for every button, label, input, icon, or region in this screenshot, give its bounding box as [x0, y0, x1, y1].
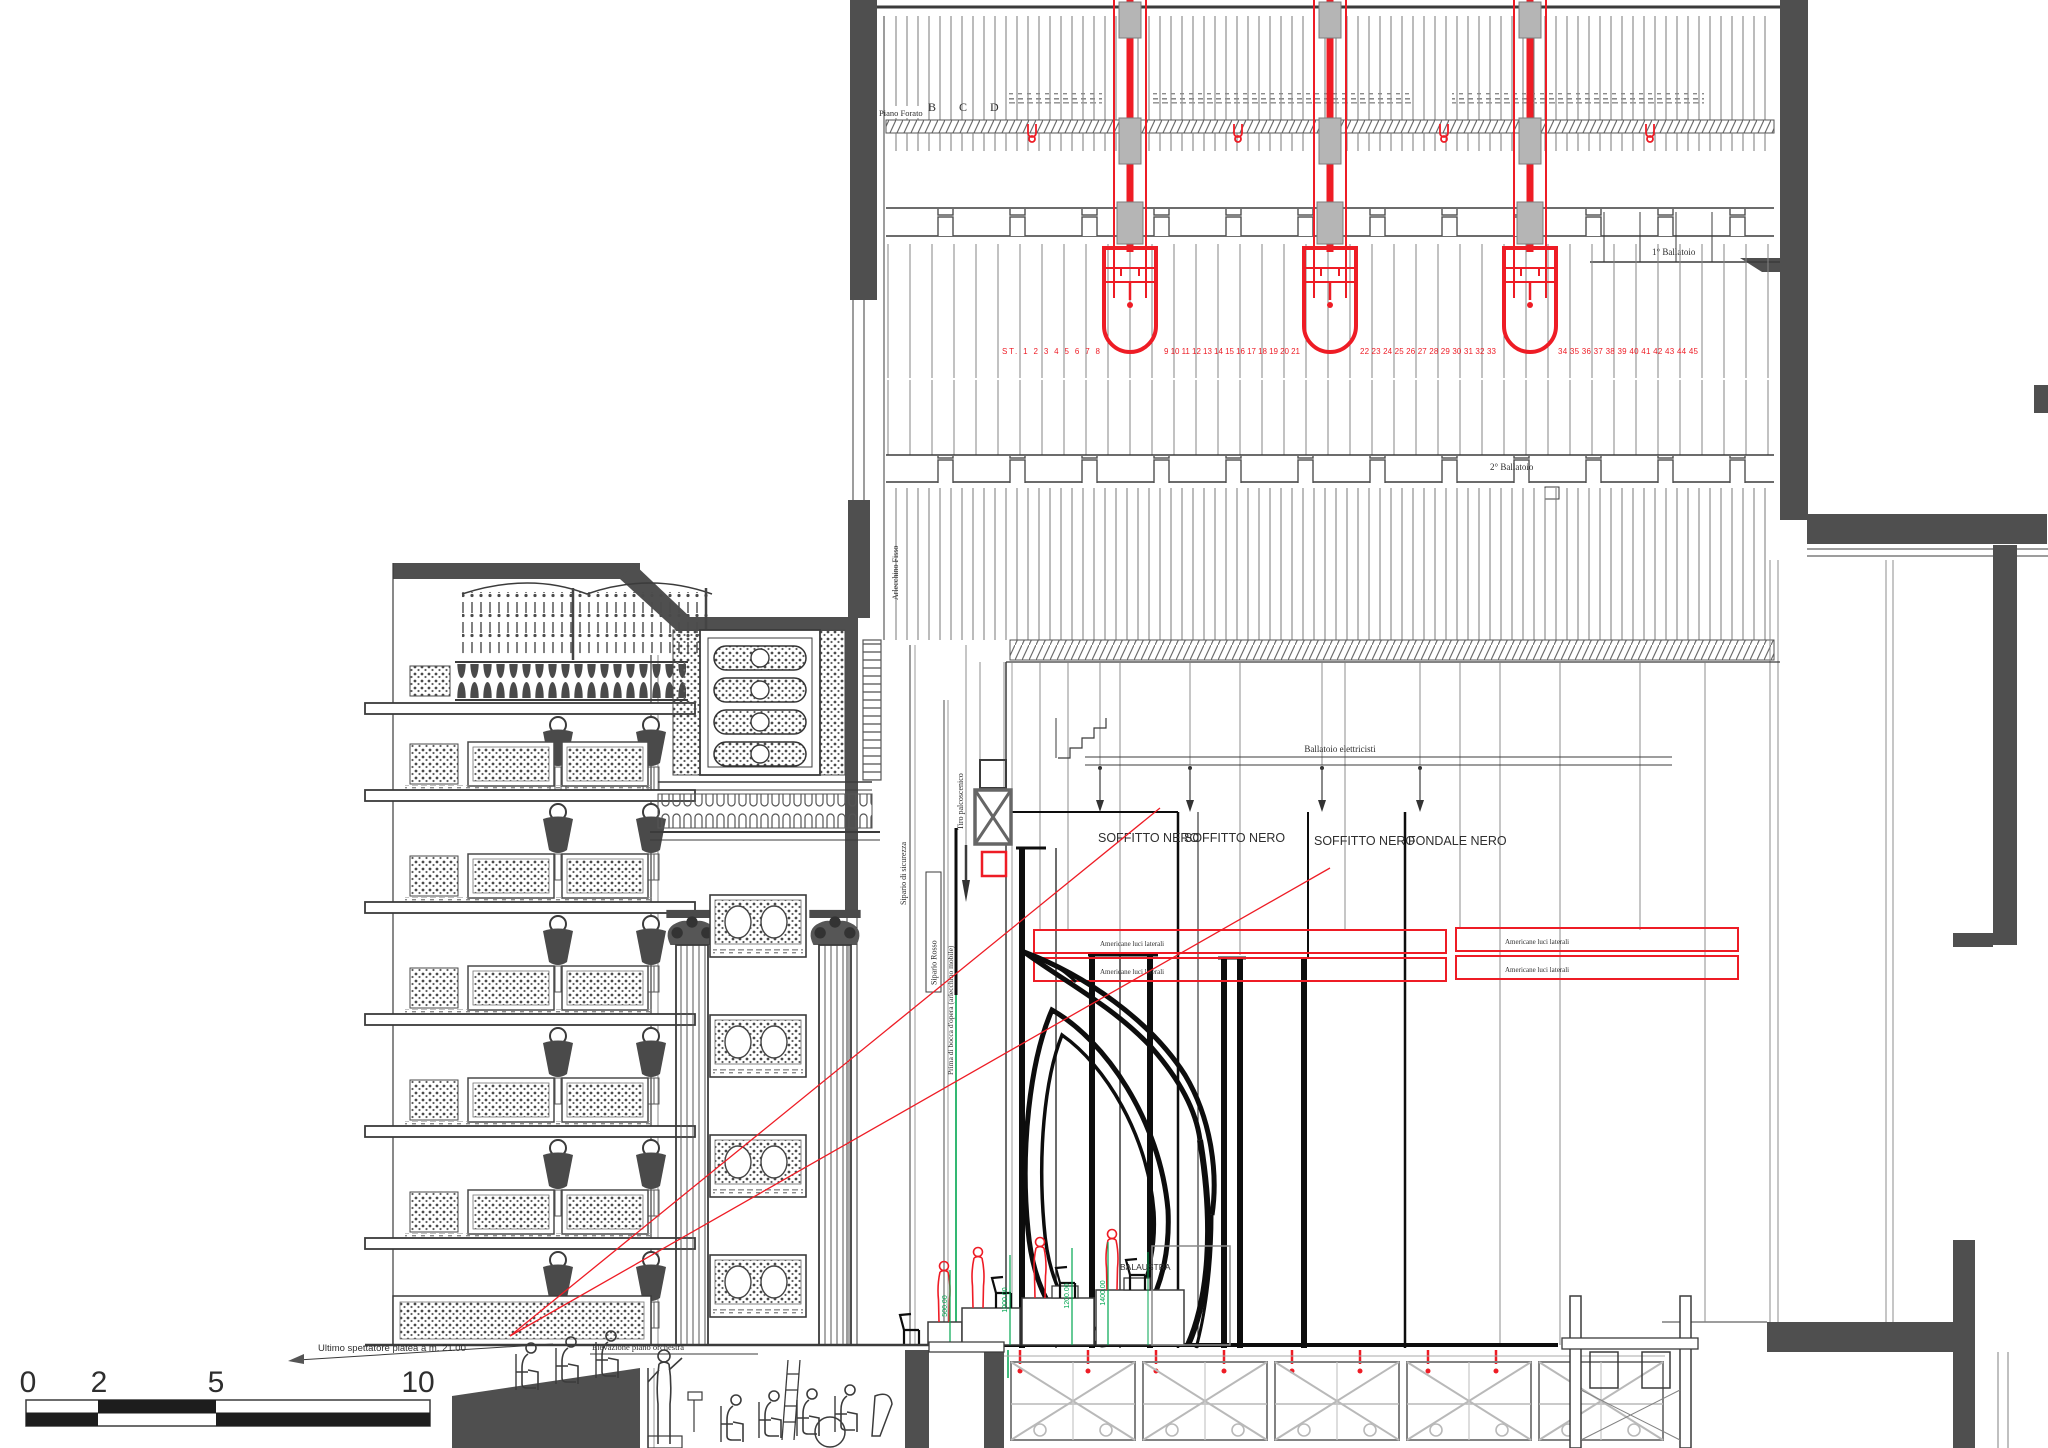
harp: [872, 1394, 892, 1436]
grid-floor-label: Piano Forato: [879, 108, 923, 118]
scale-tick-0: 0: [20, 1366, 37, 1399]
tower-left-wall: [850, 0, 877, 300]
scale-tick-5: 5: [208, 1366, 225, 1399]
height-dim-1000: 1000.00: [1002, 1287, 1009, 1312]
red-marker-box: [982, 852, 1006, 876]
theater-section-drawing: B C D Piano Forato 1° Ballatoio ST. 1 2 …: [0, 0, 2048, 1448]
height-dim-1400: 1400.00: [1100, 1280, 1107, 1305]
ceiling-labels: SOFFITTO NERO SOFFITTO NERO SOFFITTO NER…: [1098, 831, 1507, 848]
electricians-gallery: Ballatoio elettricisti: [1056, 718, 1672, 812]
corinthian-column-left: [676, 945, 708, 1345]
conductor: [648, 1350, 682, 1448]
fixed-border-label: Arlecchino Fisso: [891, 546, 900, 600]
tower-right-wall: [1780, 0, 1808, 520]
soffitto-label-3: SOFFITTO NERO: [1314, 834, 1415, 848]
fly-tower: B C D Piano Forato 1° Ballatoio ST. 1 2 …: [848, 0, 1808, 660]
house-border-label: Prima di bocca d'opera (arlecchino mobil…: [946, 945, 955, 1075]
proscenium-box-1: [710, 895, 806, 957]
side-light-label-2: Americane luci laterali: [1100, 968, 1164, 976]
last-spectator: [516, 1343, 538, 1390]
orchestra-pit: Elevazione piano orchestra: [452, 1331, 1004, 1448]
scale-bar: 0 2 5 10: [20, 1366, 435, 1426]
batten-numbers-3: 22 23 24 25 26 27 28 29 30 31 32 33: [1360, 347, 1497, 356]
electricians-gallery-label: Ballatoio elettricisti: [1304, 744, 1376, 754]
fondale-label: FONDALE NERO: [1408, 834, 1507, 848]
auditorium-roof: [393, 563, 640, 579]
balustrade-label: BALAUSTRA: [1120, 1262, 1171, 1272]
proscenium-box-2: [710, 1015, 806, 1077]
sightline-annotation: Ultimo spettatore platea a m. 21.00: [288, 1343, 553, 1364]
stage-hoist-label: Tiro palcoscenico: [956, 773, 965, 830]
batten-numbers-2: 9 10 11 12 13 14 15 16 17 18 19 20 21: [1164, 347, 1301, 356]
soffitto-label-2: SOFFITTO NERO: [1184, 831, 1285, 845]
batten-numbers-4: 34 35 36 37 38 39 40 41 42 43 44 45: [1558, 347, 1699, 356]
side-light-label-1: Americane luci laterali: [1100, 940, 1164, 948]
stage-house: Ballatoio elettricisti: [845, 618, 1780, 1378]
proscenium-frame: [650, 630, 880, 1345]
auditorium: [365, 563, 930, 1345]
ladder: [863, 640, 881, 780]
gallery-2-label: 2° Ballatoio: [1490, 462, 1534, 472]
side-light-label-4: Americane luci laterali: [1505, 966, 1569, 974]
proscenium-box-4: [710, 1255, 806, 1317]
safety-curtain-label: Sipario di sicurezza: [899, 841, 908, 905]
gallery-2-posts: [890, 456, 1774, 483]
height-dim-500: 500.00: [942, 1295, 949, 1317]
stage-platforms: BALAUSTRA 500.00 1000.00 1200.00 1400.00: [900, 1230, 1558, 1346]
loading-gallery: [1010, 640, 1774, 660]
hanging-bars: [1040, 662, 1705, 1345]
stalls-floor-mass: [452, 1368, 640, 1448]
red-curtain-label: Sipario Rosso: [930, 940, 939, 985]
scale-tick-10: 10: [401, 1366, 434, 1399]
side-light-label-3: Americane luci laterali: [1505, 938, 1569, 946]
height-dim-1200: 1200.00: [1064, 1283, 1071, 1308]
scale-tick-2: 2: [91, 1366, 108, 1399]
batten-numbers-1: ST. 1 2 3 4 5 6 7 8: [1002, 347, 1101, 356]
hoist-arrows: [1096, 766, 1424, 812]
corinthian-column-right: [819, 945, 851, 1345]
musicians: [688, 1360, 892, 1447]
sightline-note: Ultimo spettatore platea a m. 21.00: [318, 1343, 466, 1354]
stage-front-wall: [905, 1350, 929, 1448]
proscenium-curtains: Sipario di sicurezza Sipario Rosso Prima…: [845, 618, 1011, 1345]
orchestra-level-note: Elevazione piano orchestra: [592, 1342, 684, 1352]
stage-apron: [929, 1342, 1004, 1352]
grid-column-letters: B C D: [928, 100, 1009, 114]
proscenium-box-3: [710, 1135, 806, 1197]
corinthian-capital-right: [809, 910, 860, 945]
